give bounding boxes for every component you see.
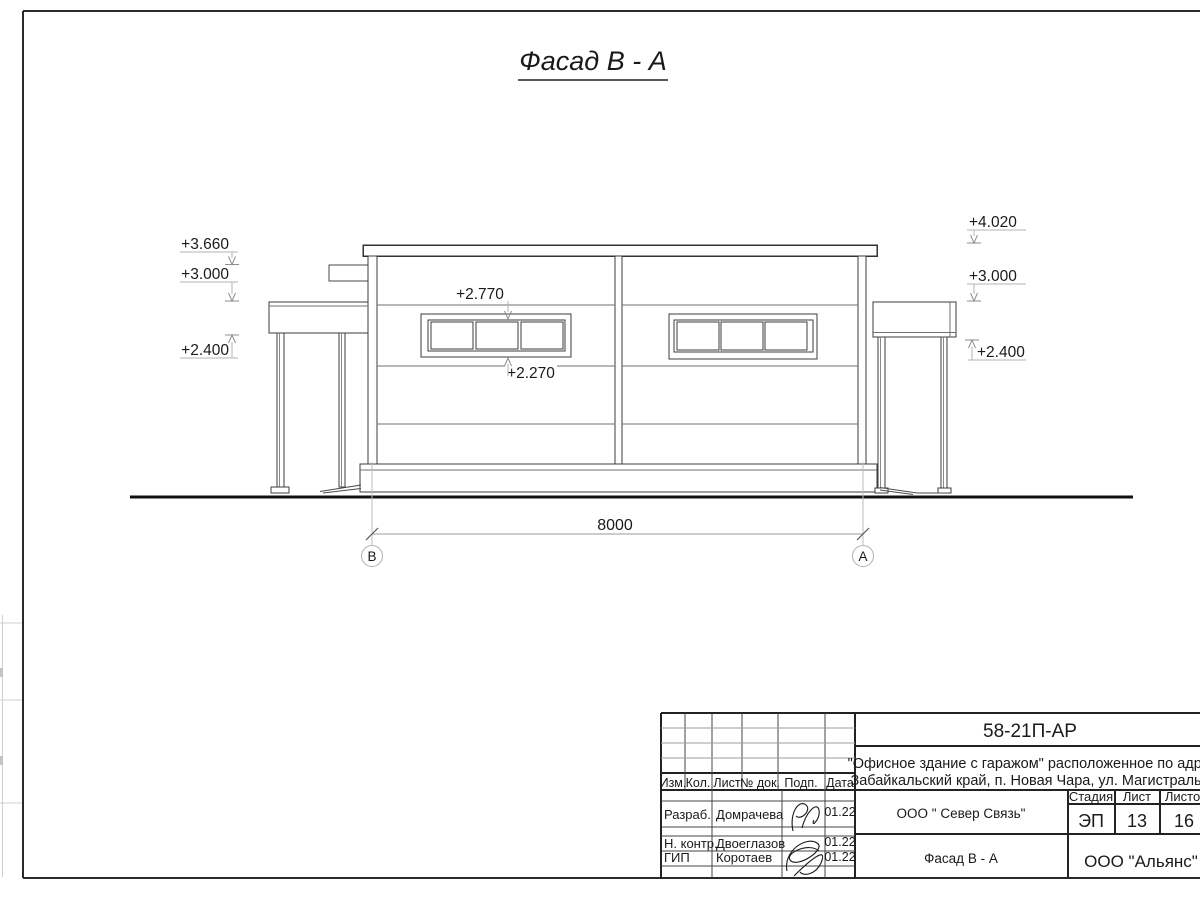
stamp-role-3: ГИП (664, 850, 690, 865)
stamp-sheet-name: Фасад В - А (924, 851, 998, 866)
stamp-org: ООО "Альянс" (1084, 852, 1198, 871)
page-title: Фасад В - А (518, 46, 668, 80)
stamp-col-kol: Кол. (686, 776, 711, 790)
stamp-col-izm: Изм. (660, 776, 687, 790)
stamp-role-1: Разраб. (664, 807, 711, 822)
axis-letter-right: А (858, 549, 867, 564)
stamp-col-doc: № док. (740, 776, 780, 790)
window-left (421, 314, 571, 357)
stamp-list-value: 13 (1127, 811, 1147, 831)
wall-pilasters (368, 256, 866, 464)
elevation-mark-right-2: +3.000 (969, 268, 1017, 285)
elevation-mark-right-1: +4.020 (969, 214, 1017, 231)
dimension-value: 8000 (597, 517, 633, 534)
stamp-col-podp: Подп. (784, 776, 817, 790)
roof-parapet-cap (363, 245, 877, 256)
stamp-stage-label: Стадия (1069, 789, 1113, 804)
width-dimension: 8000 (366, 517, 869, 540)
window-mark-bottom: +2.270 (507, 365, 555, 382)
stamp-stage-value: ЭП (1078, 811, 1104, 831)
stamp-col-list: Лист (713, 776, 740, 790)
elevation-marks-right: +4.020 +3.000 +2.400 (965, 214, 1026, 361)
elevation-marks-left: +3.660 +3.000 +2.400 (180, 236, 239, 359)
stamp-listov-value: 16 (1174, 811, 1194, 831)
stamp-role-2: Н. контр. (664, 836, 718, 851)
roof-box (329, 265, 368, 281)
elevation-mark-right-3: +2.400 (977, 344, 1025, 361)
canopy-left (269, 302, 368, 493)
elevation-mark-left-2: +3.000 (181, 266, 229, 283)
stamp-date-2: 01.22 (824, 835, 855, 849)
stamp-object-line1: "Офисное здание с гаражом" расположенное… (848, 756, 1200, 772)
facade-drawing-canvas: Фасад В - А (0, 0, 1200, 900)
stamp-listov-label: Листов (1165, 789, 1200, 804)
stamp-date-3: 01.22 (824, 850, 855, 864)
stamp-contractor: ООО " Север Связь" (897, 806, 1026, 821)
stamp-name-1: Домрачева (716, 807, 784, 822)
offsheet-fragments (0, 615, 23, 877)
signature-scribbles (787, 804, 823, 876)
stamp-date-1: 01.22 (824, 805, 855, 819)
sheet-frame (23, 11, 1200, 878)
window-right (669, 314, 817, 359)
drawing-sheet: Фасад В - А (0, 0, 1200, 900)
plinth (360, 464, 877, 492)
stamp-object-line2: Забайкальский край, п. Новая Чара, ул. М… (850, 773, 1200, 789)
elevation-mark-left-1: +3.660 (181, 236, 229, 253)
axis-markers: В А (362, 546, 874, 567)
facade-title-text: Фасад В - А (519, 46, 666, 76)
canopy-right (873, 302, 956, 493)
elevation-mark-left-3: +2.400 (181, 342, 229, 359)
stamp-doc-number: 58-21П-АР (983, 721, 1077, 742)
title-block-faint-lines (661, 728, 855, 758)
axis-letter-left: В (367, 549, 376, 564)
signature-2 (787, 841, 823, 876)
title-block: Изм. Кол. Лист № док. Подп. Дата Разраб.… (660, 713, 1200, 878)
stamp-name-2: Двоеглазов (716, 836, 785, 851)
building-elevation (269, 245, 956, 493)
stamp-list-label: Лист (1123, 789, 1151, 804)
window-mark-top: +2.770 (456, 286, 504, 303)
stamp-name-3: Коротаев (716, 850, 772, 865)
